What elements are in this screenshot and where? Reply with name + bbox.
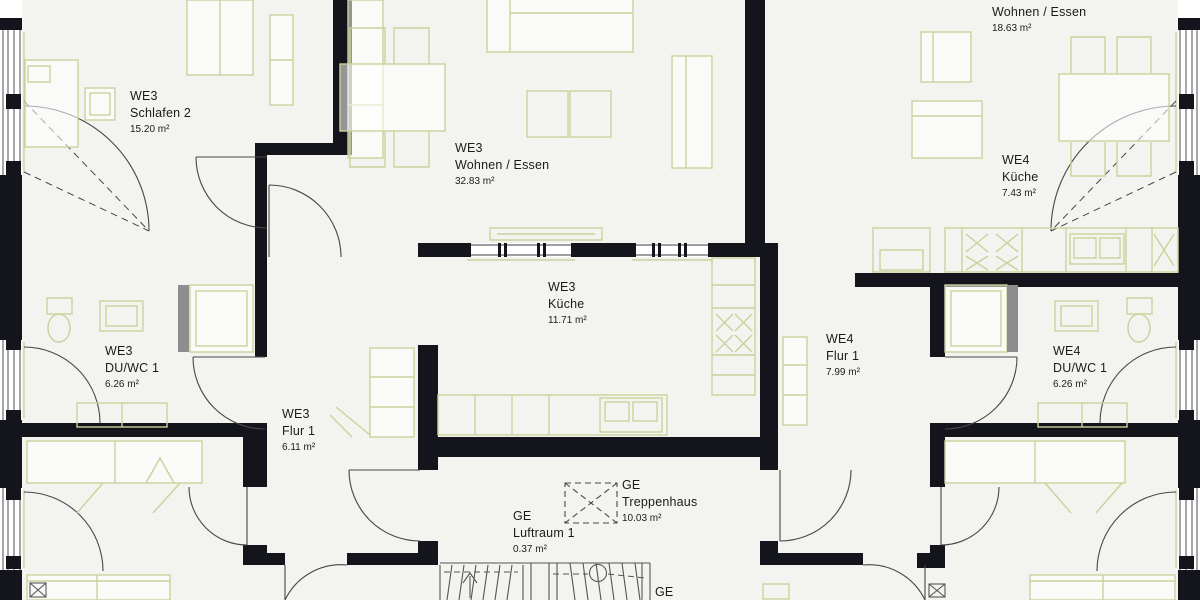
floor-plan: WE3Schlafen 215.20 m²WE3Wohnen / Essen32… bbox=[0, 0, 1200, 600]
floor-plan-drawing bbox=[0, 0, 1200, 600]
